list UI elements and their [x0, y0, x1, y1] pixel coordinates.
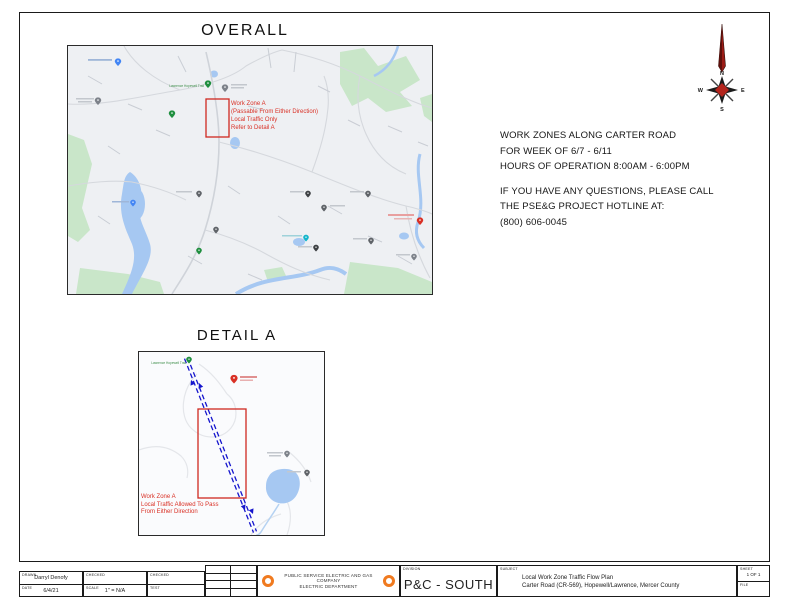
compass-west-label: W	[698, 88, 704, 94]
subject-cell: SUBJECT Local Work Zone Traffic Flow Pla…	[497, 565, 737, 597]
revision-cell	[231, 589, 256, 597]
annotation-line: Work Zone A	[231, 100, 318, 108]
detail-work-zone-annotation: Work Zone A Local Traffic Allowed To Pas…	[141, 494, 219, 517]
work-zone-rect-detail	[198, 409, 246, 498]
sheet-label: SHEET	[740, 567, 753, 571]
annotation-line: From Either Direction	[141, 509, 219, 517]
division-cell: DIVISION P&C - SOUTH	[400, 565, 497, 597]
overall-map-title: OVERALL	[155, 22, 335, 40]
annotation-line: Refer to Detail A	[231, 124, 318, 132]
sheet-row: SHEET 1 OF 1	[738, 566, 769, 582]
checked-row: CHECKED	[84, 572, 146, 585]
date-label: DATE	[22, 586, 32, 590]
compass-rose: N E W S	[692, 20, 752, 112]
subject-line: Local Work Zone Traffic Flow Plan	[522, 575, 736, 583]
trail-label: Lawrence Hopewell Trail	[169, 84, 204, 88]
drawn-label: DRAWN	[22, 573, 36, 577]
test-label: TEST	[150, 586, 160, 590]
checked-scale-cell: CHECKED SCALE 1" = N/A	[83, 571, 147, 597]
poi-label-bars	[240, 376, 301, 473]
sheet-file-cell: SHEET 1 OF 1 FILE	[737, 565, 770, 597]
scale-label: SCALE	[86, 586, 99, 590]
revision-cell	[206, 574, 231, 582]
test-row: TEST	[148, 585, 204, 598]
title-block: DRAWN Darryl Denofy DATE 6/4/21 CHECKED …	[19, 561, 770, 596]
division-value: P&C - SOUTH	[401, 577, 496, 592]
division-label: DIVISION	[403, 567, 420, 571]
file-label: FILE	[740, 583, 748, 587]
checked-test-cell: CHECKED TEST	[147, 571, 205, 597]
detail-map-title: DETAIL A	[148, 327, 326, 344]
checked-label: CHECKED	[86, 573, 105, 577]
annotation-line: (Passable From Either Direction)	[231, 108, 318, 116]
compass-south-label: S	[720, 107, 724, 112]
revision-cell	[231, 566, 256, 574]
notice-line: THE PSE&G PROJECT HOTLINE AT:	[500, 199, 714, 215]
notice-line: (800) 606-0045	[500, 215, 714, 231]
company-name-line: PUBLIC SERVICE ELECTRIC AND GAS COMPANY	[274, 573, 383, 584]
overall-work-zone-annotation: Work Zone A (Passable From Either Direct…	[231, 100, 318, 132]
scale-row: SCALE 1" = N/A	[84, 585, 146, 598]
checked-row: CHECKED	[148, 572, 204, 585]
revision-cell	[206, 589, 231, 597]
trail-label: Lawrence Hopewell Trail	[151, 361, 186, 365]
pseg-logo-icon	[262, 575, 274, 587]
revision-cell	[206, 566, 231, 574]
company-name: PUBLIC SERVICE ELECTRIC AND GAS COMPANY …	[274, 573, 383, 590]
overall-map-canvas: Lawrence Hopewell Trail	[68, 46, 432, 294]
work-zone-notice: WORK ZONES ALONG CARTER ROAD FOR WEEK OF…	[500, 128, 714, 230]
checked-label: CHECKED	[150, 573, 169, 577]
revision-cell	[206, 581, 231, 589]
revision-cell	[231, 574, 256, 582]
revision-grid	[205, 565, 257, 597]
pseg-logo-icon	[383, 575, 395, 587]
notice-line: IF YOU HAVE ANY QUESTIONS, PLEASE CALL	[500, 184, 714, 200]
subject-line: Carter Road (CR-569), Hopewell/Lawrence,…	[522, 583, 736, 591]
notice-line: FOR WEEK OF 6/7 - 6/11	[500, 144, 714, 160]
file-row: FILE	[738, 582, 769, 598]
notice-line: HOURS OF OPERATION 8:00AM - 6:00PM	[500, 159, 714, 175]
annotation-line: Local Traffic Allowed To Pass	[141, 502, 219, 510]
north-needle-icon	[719, 24, 726, 72]
annotation-line: Work Zone A	[141, 494, 219, 502]
water-areas	[256, 469, 300, 535]
drawn-row: DRAWN Darryl Denofy	[20, 572, 82, 585]
compass-east-label: E	[741, 88, 745, 94]
compass-north-label: N	[720, 71, 724, 77]
map-pins	[186, 357, 310, 477]
subject-label: SUBJECT	[500, 567, 518, 571]
company-cell: PUBLIC SERVICE ELECTRIC AND GAS COMPANY …	[257, 565, 400, 597]
annotation-line: Local Traffic Only	[231, 116, 318, 124]
subject-text: Local Work Zone Traffic Flow Plan Carter…	[522, 575, 736, 590]
date-row: DATE 6/4/21	[20, 585, 82, 598]
star-points	[706, 76, 738, 104]
overall-map: Lawrence Hopewell Trail	[67, 45, 433, 295]
company-dept-line: ELECTRIC DEPARTMENT	[274, 584, 383, 590]
revision-cell	[231, 581, 256, 589]
notice-line: WORK ZONES ALONG CARTER ROAD	[500, 128, 714, 144]
notice-gap	[500, 175, 714, 184]
drawn-date-cell: DRAWN Darryl Denofy DATE 6/4/21	[19, 571, 83, 597]
